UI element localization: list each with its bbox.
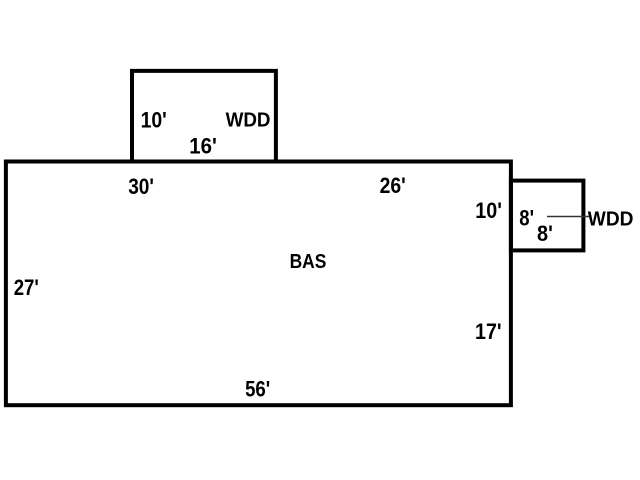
svg-text:WDD: WDD [226,110,271,132]
svg-text:8': 8' [519,205,534,230]
svg-text:10': 10' [475,198,502,223]
svg-text:30': 30' [128,174,154,199]
svg-text:10': 10' [141,107,167,132]
svg-text:BAS: BAS [290,251,327,273]
svg-text:16': 16' [189,134,217,159]
svg-text:17': 17' [475,319,502,344]
svg-text:8': 8' [537,221,553,246]
svg-text:56': 56' [245,376,270,401]
svg-text:26': 26' [380,173,406,198]
svg-text:WDD: WDD [588,208,634,230]
svg-text:27': 27' [14,275,39,300]
